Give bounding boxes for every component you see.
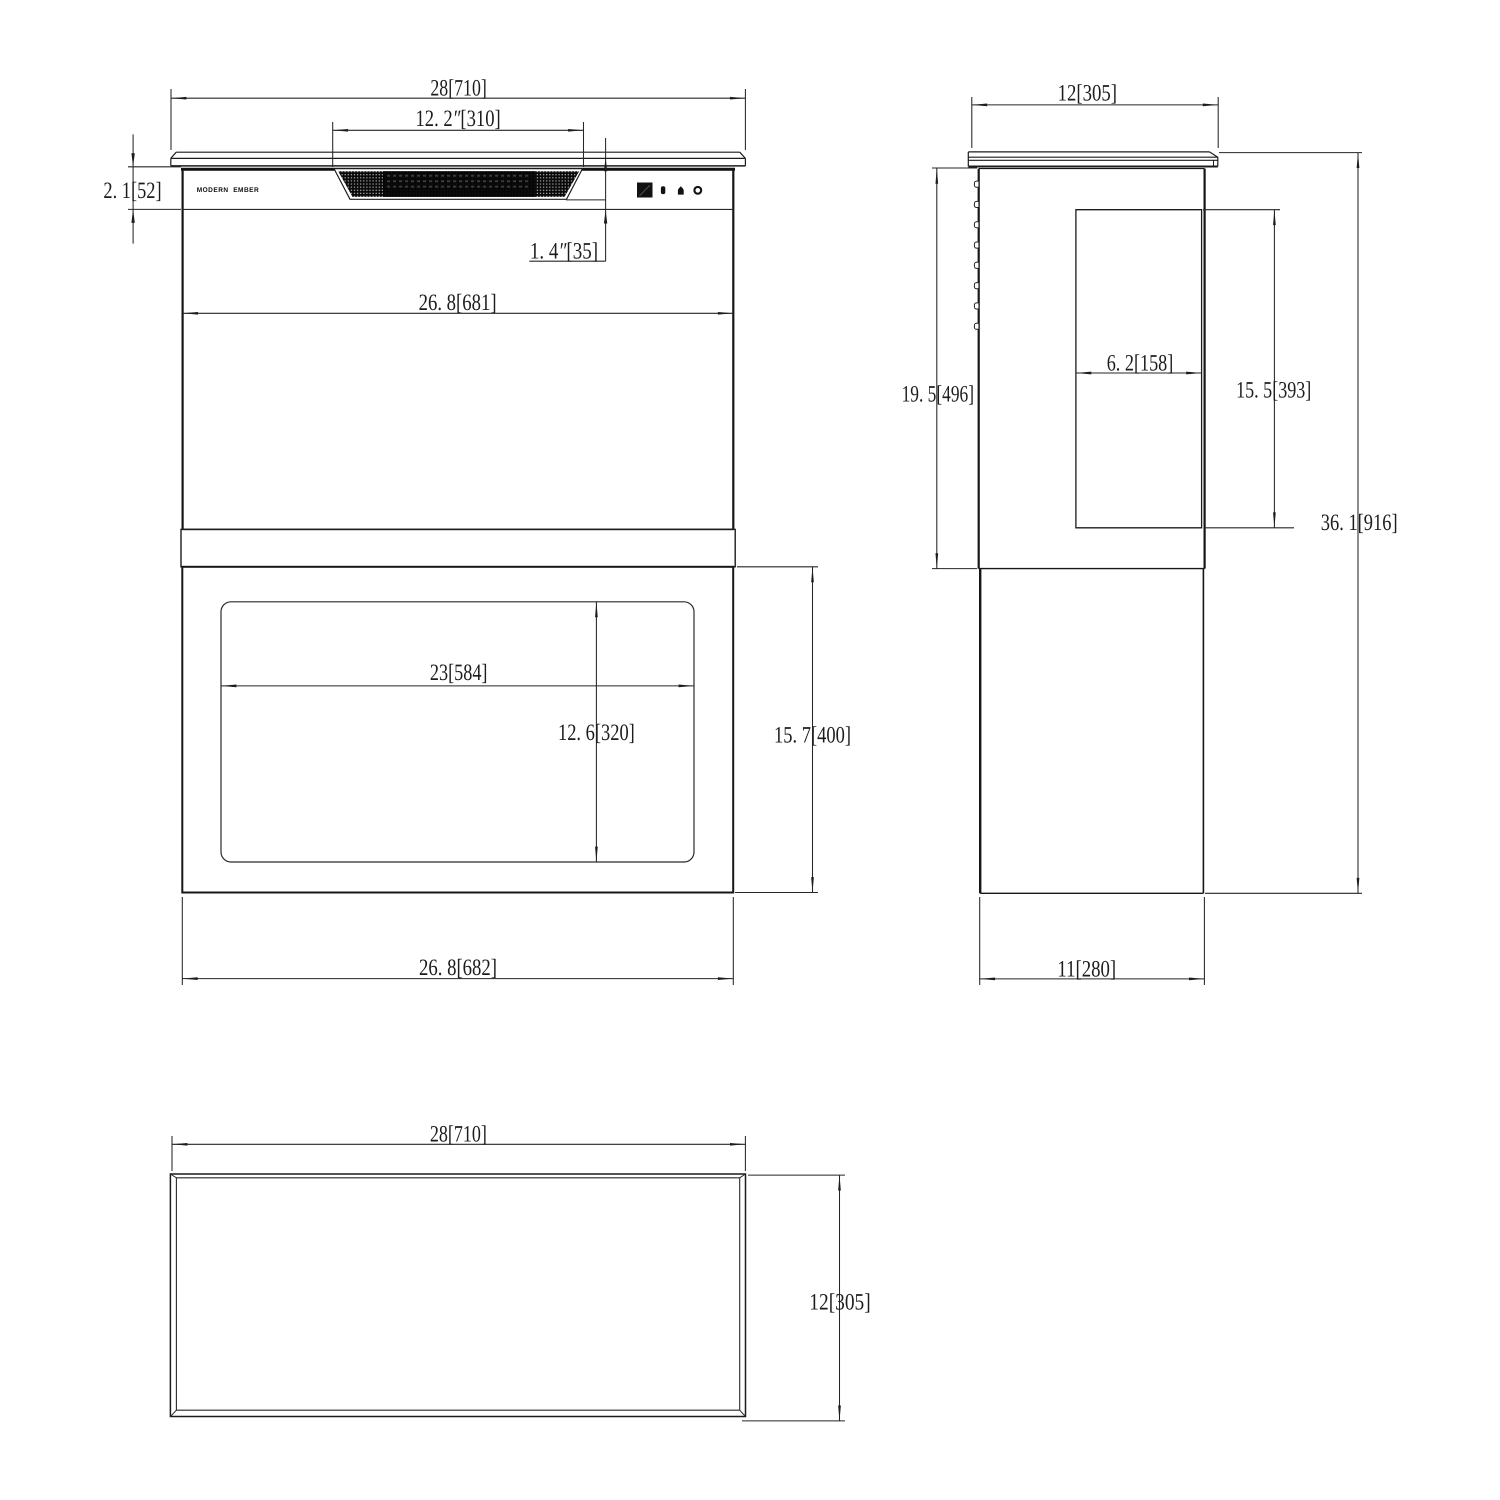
svg-text:28[710]: 28[710] <box>430 76 486 102</box>
svg-text:6. 2[158]: 6. 2[158] <box>1107 351 1174 377</box>
svg-text:12[305]: 12[305] <box>1058 81 1117 107</box>
svg-text:12[305]: 12[305] <box>809 1290 870 1316</box>
svg-text:26. 8[681]: 26. 8[681] <box>419 290 497 316</box>
svg-text:36. 1[916]: 36. 1[916] <box>1321 510 1398 536</box>
svg-text:12. 6[320]: 12. 6[320] <box>558 720 635 746</box>
svg-text:2. 1[52]: 2. 1[52] <box>103 178 161 204</box>
svg-text:19. 5[496]: 19. 5[496] <box>902 382 974 408</box>
svg-text:11[280]: 11[280] <box>1057 957 1116 983</box>
svg-text:23[584]: 23[584] <box>430 660 488 686</box>
svg-text:28[710]: 28[710] <box>430 1122 487 1148</box>
svg-text:1. 4″[35]: 1. 4″[35] <box>530 238 598 264</box>
svg-text:26. 8[682]: 26. 8[682] <box>419 955 497 981</box>
svg-text:MODERN EMBER: MODERN EMBER <box>197 187 260 194</box>
svg-text:15. 7[400]: 15. 7[400] <box>774 722 851 748</box>
svg-text:12. 2″[310]: 12. 2″[310] <box>416 106 501 132</box>
svg-text:15. 5[393]: 15. 5[393] <box>1236 378 1311 404</box>
